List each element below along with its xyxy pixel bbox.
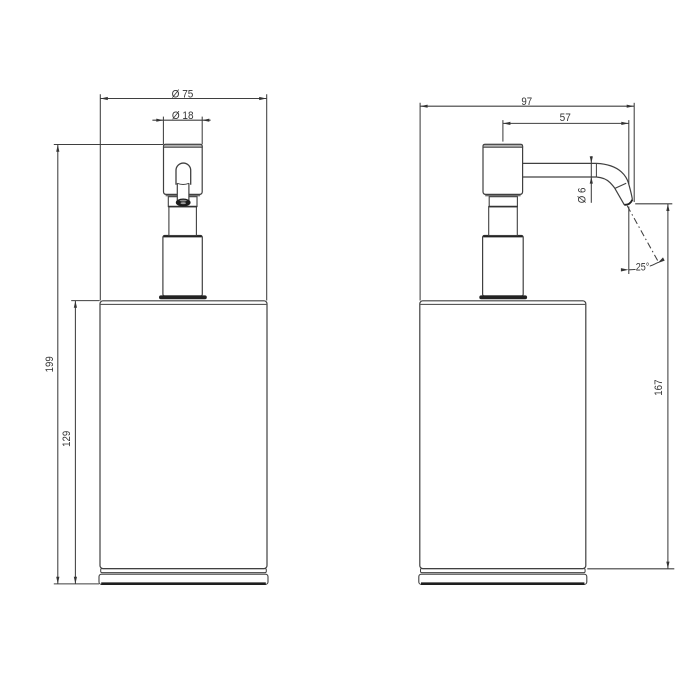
svg-text:Ø 18: Ø 18 (172, 110, 194, 122)
svg-text:97: 97 (521, 96, 532, 108)
svg-text:57: 57 (560, 112, 571, 124)
svg-text:167: 167 (653, 380, 665, 396)
svg-text:Ø 6: Ø 6 (576, 188, 588, 204)
svg-text:Ø 75: Ø 75 (172, 88, 194, 100)
svg-text:25°: 25° (636, 261, 650, 273)
svg-text:199: 199 (44, 356, 56, 372)
svg-text:129: 129 (61, 431, 73, 447)
